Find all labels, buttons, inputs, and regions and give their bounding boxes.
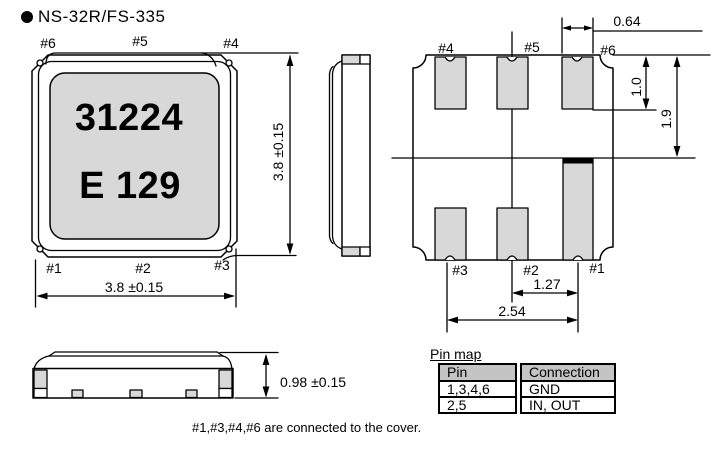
arrowhead-icon	[567, 317, 578, 324]
front-view-drawing	[33, 352, 278, 398]
device-marking-line2: E 129	[79, 167, 181, 205]
side-lid-curve	[333, 236, 343, 249]
top-view-pin2-label: #2	[135, 261, 151, 275]
cover-connection-note: #1,#3,#4,#6 are connected to the cover.	[192, 421, 421, 434]
front-side-step	[34, 389, 47, 398]
side-lid-curve	[333, 61, 343, 74]
side-pad	[342, 247, 360, 256]
pad-1	[563, 159, 593, 261]
side-pad-step	[360, 247, 370, 256]
arrowhead-icon	[287, 55, 294, 66]
arrowhead-icon	[447, 317, 458, 324]
pad-3	[435, 208, 466, 260]
pad-6	[562, 57, 593, 109]
extension-line	[223, 256, 296, 261]
front-bottom-pad	[72, 390, 83, 398]
dim-pad-width-label: 0.64	[613, 14, 640, 28]
pad-1-edge	[563, 159, 593, 164]
bottom-view-pin3-label: #3	[452, 263, 468, 277]
arrowhead-icon	[562, 25, 571, 30]
front-bottom-pad	[186, 390, 197, 398]
bottom-view-pin4-label: #4	[438, 41, 454, 55]
bottom-view-pin1-label: #1	[589, 261, 605, 275]
top-view-pin3-label: #3	[214, 258, 230, 272]
bullet-icon	[21, 11, 33, 23]
arrowhead-icon	[512, 290, 523, 297]
pin-map-header-connection: Connection	[522, 365, 614, 382]
pin-map-table-connection-column: Connection GND IN, OUT	[520, 363, 616, 414]
arrowhead-icon	[263, 354, 270, 365]
front-side-pad	[34, 370, 47, 389]
arrowhead-icon	[287, 244, 294, 255]
bottom-view-pin6-label: #6	[600, 43, 616, 57]
pin-map-cell: 1,3,4,6	[440, 382, 515, 398]
front-shoulder-curve	[223, 356, 232, 369]
side-view-drawing	[330, 55, 371, 256]
pin-map-cell: IN, OUT	[522, 398, 614, 412]
arrowhead-icon	[37, 293, 48, 300]
arrowhead-icon	[584, 25, 593, 30]
front-shoulder-curve	[34, 356, 49, 369]
arrowhead-icon	[643, 99, 650, 110]
arrowhead-icon	[263, 387, 270, 398]
front-side-step	[219, 389, 232, 398]
pin-map-header-pin: Pin	[440, 365, 515, 382]
arrowhead-icon	[643, 56, 650, 67]
pad-2	[497, 208, 528, 260]
arrowhead-icon	[567, 290, 578, 297]
dim-pitch-small-label: 1.27	[533, 277, 560, 291]
arrowhead-icon	[224, 293, 235, 300]
device-marking-line1: 31224	[75, 99, 183, 137]
dim-pad-height-label: 1.0	[629, 77, 643, 96]
top-view-pin4-label: #4	[223, 36, 239, 50]
pad-4	[435, 57, 466, 109]
pin-map-cell: GND	[522, 382, 614, 398]
dim-height-label: 3.8 ±0.15	[271, 123, 285, 181]
datasheet-page: NS-32R/FS-335 #6 #5 #4 #1 #2 #3 31224 E …	[0, 0, 723, 458]
bottom-view-pin5-label: #5	[524, 40, 540, 54]
arrowhead-icon	[674, 56, 681, 67]
top-view-pin6-label: #6	[40, 36, 56, 50]
front-bottom-pad	[130, 390, 142, 398]
bottom-view-pin2-label: #2	[523, 263, 539, 277]
top-view-pin1-label: #1	[46, 261, 62, 275]
dim-half-height-label: 1.9	[659, 109, 673, 128]
dim-pitch-large-label: 2.54	[498, 304, 525, 318]
top-view-pin5-label: #5	[132, 34, 148, 48]
side-pad-step	[360, 55, 370, 64]
dim-width-label: 3.8 ±0.15	[105, 280, 163, 294]
pad-5	[497, 57, 528, 109]
pin-map-caption: Pin map	[430, 347, 481, 361]
side-pad	[342, 55, 360, 64]
pin-map-cell: 2,5	[440, 398, 515, 412]
front-side-pad	[219, 370, 232, 389]
dim-thickness-label: 0.98 ±0.15	[280, 375, 346, 389]
pin-map-table-pin-column: Pin 1,3,4,6 2,5	[438, 363, 517, 414]
side-body	[342, 55, 370, 256]
page-title: NS-32R/FS-335	[38, 8, 165, 25]
arrowhead-icon	[674, 146, 681, 157]
